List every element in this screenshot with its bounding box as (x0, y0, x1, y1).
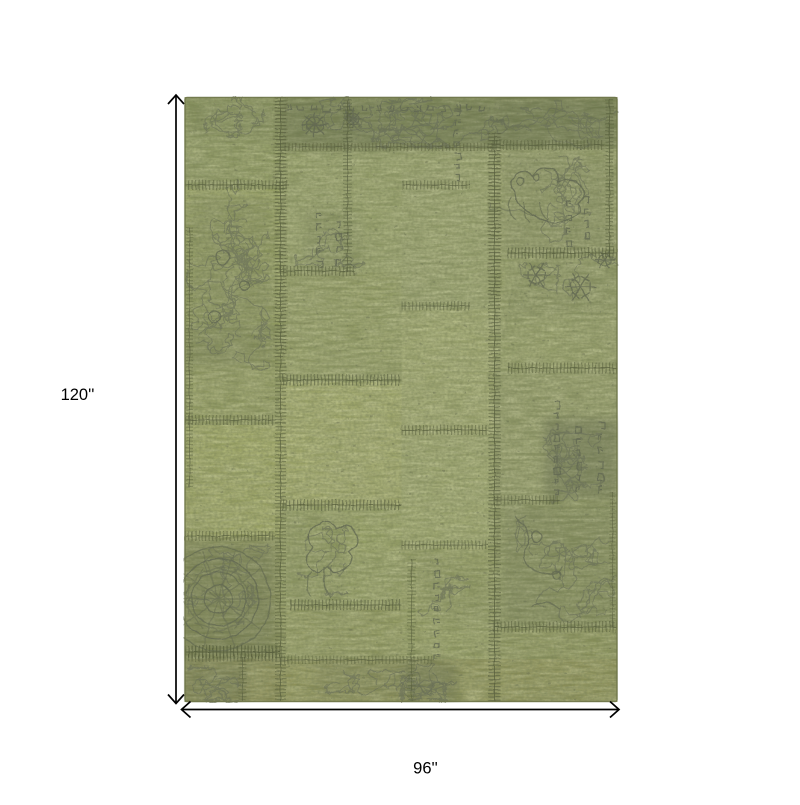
svg-text:120'': 120'' (61, 386, 95, 404)
svg-text:96'': 96'' (413, 760, 438, 778)
